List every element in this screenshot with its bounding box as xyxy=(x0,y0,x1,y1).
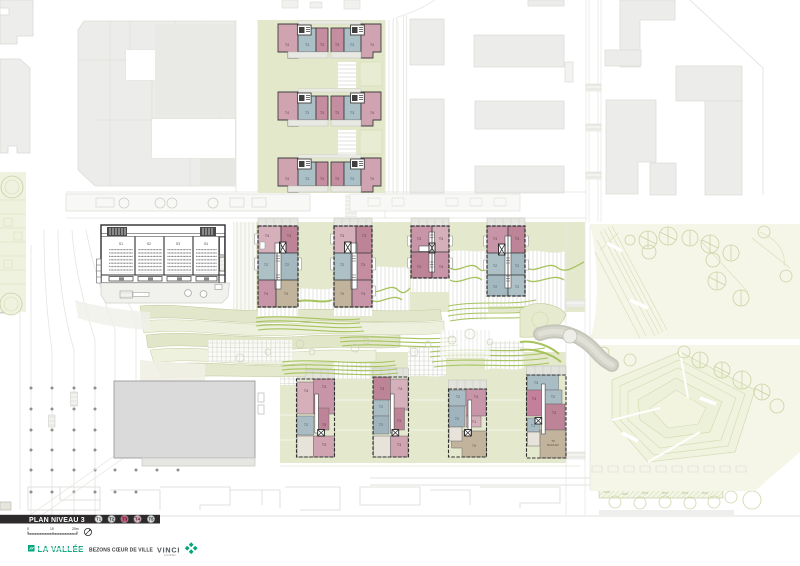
svg-text:VINCI: VINCI xyxy=(157,545,180,554)
svg-text:T1: T1 xyxy=(472,420,476,424)
svg-text:10: 10 xyxy=(50,527,54,531)
svg-text:S3: S3 xyxy=(176,242,180,246)
svg-text:T2: T2 xyxy=(493,285,497,289)
svg-text:T3: T3 xyxy=(320,111,324,115)
svg-text:T4: T4 xyxy=(361,292,365,296)
svg-text:T3: T3 xyxy=(493,237,497,241)
svg-text:T3: T3 xyxy=(397,443,401,447)
svg-text:T3: T3 xyxy=(335,43,339,47)
svg-text:T4: T4 xyxy=(439,265,443,269)
svg-text:T3: T3 xyxy=(439,237,443,241)
svg-text:T3: T3 xyxy=(380,387,384,391)
svg-text:T3: T3 xyxy=(122,517,128,522)
svg-text:T1: T1 xyxy=(96,517,102,522)
svg-text:T4: T4 xyxy=(135,517,141,522)
svg-text:T3: T3 xyxy=(305,43,309,47)
svg-text:T2: T2 xyxy=(285,263,289,267)
svg-text:T2: T2 xyxy=(109,517,115,522)
svg-text:T4: T4 xyxy=(398,387,402,391)
svg-text:T2: T2 xyxy=(304,423,308,427)
svg-text:T2: T2 xyxy=(515,285,519,289)
svg-text:T2: T2 xyxy=(551,395,555,399)
svg-text:T3: T3 xyxy=(322,443,326,447)
svg-text:S1: S1 xyxy=(119,242,123,246)
svg-text:T3: T3 xyxy=(340,234,344,238)
svg-text:T3: T3 xyxy=(320,177,324,181)
svg-text:T2: T2 xyxy=(493,264,497,268)
svg-text:DUPLEX: DUPLEX xyxy=(547,443,559,447)
svg-text:immobilier: immobilier xyxy=(164,553,176,557)
svg-text:T3: T3 xyxy=(417,237,421,241)
svg-text:T3: T3 xyxy=(350,43,354,47)
svg-text:PLAN NIVEAU 3: PLAN NIVEAU 3 xyxy=(29,517,85,524)
svg-text:T5: T5 xyxy=(472,444,476,448)
svg-text:20m: 20m xyxy=(72,527,79,531)
svg-text:0: 0 xyxy=(27,527,29,531)
svg-text:T1: T1 xyxy=(531,424,535,428)
svg-text:T3: T3 xyxy=(305,177,309,181)
svg-text:T2: T2 xyxy=(456,395,460,399)
svg-text:T4: T4 xyxy=(370,43,374,47)
svg-text:T5: T5 xyxy=(322,423,326,427)
svg-text:T3: T3 xyxy=(335,177,339,181)
svg-text:T4: T4 xyxy=(285,177,289,181)
svg-text:T5: T5 xyxy=(149,517,155,522)
svg-text:T3: T3 xyxy=(397,419,401,423)
svg-text:T2: T2 xyxy=(379,423,383,427)
svg-text:T4: T4 xyxy=(264,292,268,296)
svg-text:T3: T3 xyxy=(417,265,421,269)
svg-text:BEZONS CŒUR DE VILLE: BEZONS CŒUR DE VILLE xyxy=(89,547,154,553)
svg-text:T3: T3 xyxy=(552,411,556,415)
svg-text:T3: T3 xyxy=(350,177,354,181)
svg-text:T2: T2 xyxy=(379,405,383,409)
svg-text:T3: T3 xyxy=(361,263,365,267)
svg-text:S4: S4 xyxy=(204,242,208,246)
svg-text:S2: S2 xyxy=(147,242,151,246)
svg-text:T2: T2 xyxy=(515,264,519,268)
svg-text:T2: T2 xyxy=(264,263,268,267)
svg-text:T4: T4 xyxy=(370,111,374,115)
svg-text:T5: T5 xyxy=(284,292,288,296)
svg-text:T5: T5 xyxy=(340,292,344,296)
svg-text:T3: T3 xyxy=(532,397,536,401)
svg-text:T4: T4 xyxy=(370,177,374,181)
svg-text:LA VALLÉE: LA VALLÉE xyxy=(38,545,85,554)
svg-text:T3: T3 xyxy=(534,381,538,385)
svg-text:T3: T3 xyxy=(287,234,291,238)
svg-text:T4: T4 xyxy=(265,234,269,238)
svg-text:T2: T2 xyxy=(340,263,344,267)
svg-text:T3: T3 xyxy=(335,111,339,115)
svg-text:T3: T3 xyxy=(322,385,326,389)
svg-text:T3: T3 xyxy=(362,234,366,238)
svg-text:T3: T3 xyxy=(320,43,324,47)
svg-text:T4: T4 xyxy=(474,395,478,399)
svg-text:T3: T3 xyxy=(305,111,309,115)
svg-text:T4: T4 xyxy=(304,389,308,393)
svg-text:T4: T4 xyxy=(285,111,289,115)
svg-text:T3: T3 xyxy=(515,237,519,241)
svg-text:T3: T3 xyxy=(350,111,354,115)
svg-text:T4: T4 xyxy=(285,43,289,47)
svg-text:T2: T2 xyxy=(455,417,459,421)
